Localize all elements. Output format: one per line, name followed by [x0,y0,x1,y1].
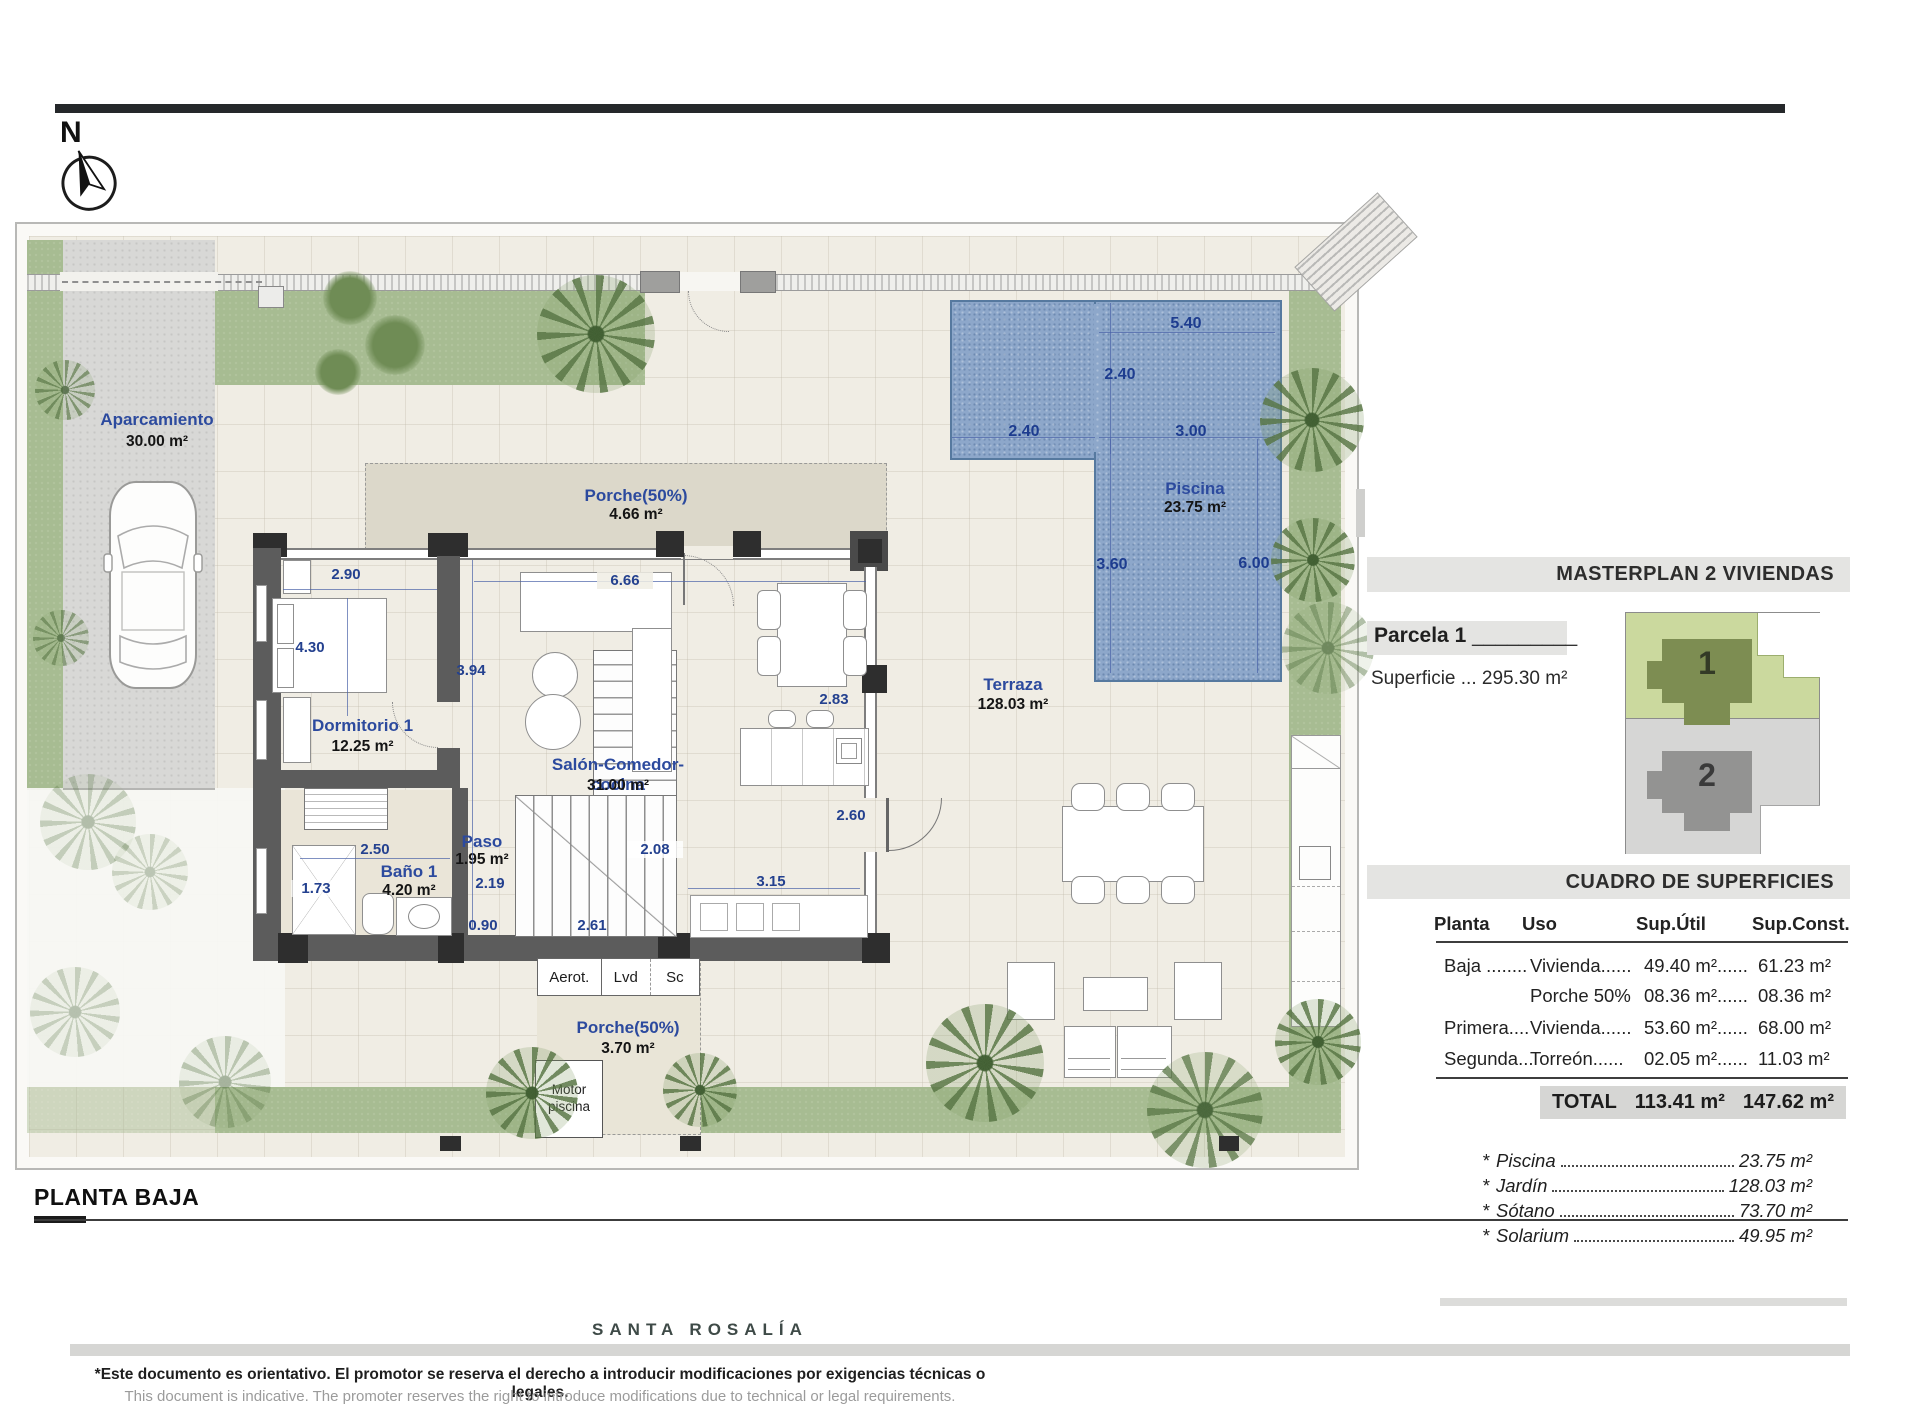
cell: 08.36 m²...... [1644,985,1758,1007]
dim-315: 3.15 [743,874,799,889]
total-bar: TOTAL 113.41 m² 147.62 m² [1540,1086,1846,1119]
appliance [772,903,800,931]
round-chair [525,694,581,750]
lounger-lines [1121,1058,1166,1070]
dim-173: 1.73 [291,880,341,897]
parcela-line: _________ [1472,624,1577,647]
extra-value: 128.03 m² [1729,1175,1812,1197]
unit2-number: 2 [1692,757,1722,794]
parcel1-notch-step [1783,655,1820,678]
storage-divider [1292,886,1340,887]
palm-tree-icon [1260,368,1364,472]
table-rule [1436,941,1848,943]
sink-basin [408,904,440,929]
north-compass-icon [45,137,131,223]
cuadro-title: CUADRO DE SUPERFICIES [1566,871,1834,894]
palm-tree-icon [33,610,89,666]
star: * [1482,1150,1496,1172]
wall-post [428,533,468,557]
porche-bottom-label: Porche(50%) [563,1018,693,1038]
disclaimer-en: This document is indicative. The promote… [80,1388,1000,1405]
window [256,848,267,914]
pool-dim-540: 5.40 [1146,316,1226,332]
cell: 53.60 m²...... [1644,1017,1758,1039]
bush-icon [323,271,377,325]
palm-tree-icon [1271,518,1355,602]
utility-aerot: Aerot. [538,959,602,995]
storage-door [1299,846,1331,880]
pool-dim-line [1099,332,1275,333]
boundary-marker [1356,489,1365,537]
palm-tree-icon [537,275,655,393]
parcel1-notch [1757,613,1820,656]
total-const: 147.62 m² [1743,1091,1834,1114]
col-uso: Uso [1522,913,1636,935]
cell: 02.05 m²...... [1644,1048,1758,1070]
outdoor-chair [1161,783,1195,811]
outdoor-table [1062,806,1204,882]
salon-area: 31.00 m² [528,778,708,794]
table-header-row: Planta Uso Sup.Útil Sup.Const. [1434,913,1848,935]
storage-divider [1292,931,1340,932]
window [256,700,267,760]
dim-090: 0.90 [455,918,511,933]
top-rule [55,104,1785,113]
utility-sc: Sc [651,959,699,995]
dining-chair [757,636,781,676]
palm-tree-icon [30,967,120,1057]
armchair [1174,962,1222,1020]
dim-394: 3.94 [443,663,499,678]
dim-250: 2.50 [347,842,403,857]
palm-tree-icon [663,1053,737,1127]
dim-219: 2.19 [462,876,518,891]
pool-dim-240h: 2.40 [994,424,1054,440]
wall-post [656,531,684,557]
cell: 68.00 m² [1758,1017,1848,1039]
toilet [362,893,394,935]
storage-divider [1292,981,1340,982]
col-suputil: Sup.Útil [1636,913,1752,935]
porche-top-label: Porche(50%) [571,486,701,506]
palm-tree-icon [112,834,188,910]
dining-chair [843,590,867,630]
masterplan-header: MASTERPLAN 2 VIVIENDAS [1367,557,1850,592]
utility-lvd: Lvd [602,959,651,995]
house2-shape [1684,813,1730,831]
col-planta: Planta [1434,913,1522,935]
dim-line [474,581,866,582]
table-row: Segunda... Torreón...... 02.05 m²...... … [1444,1048,1848,1070]
cell: Porche 50% [1530,985,1644,1007]
bush-icon [315,349,361,395]
house-top-window-wall [255,548,865,560]
cell: Torreón...... [1530,1048,1644,1070]
closet [304,788,388,830]
wall-post [278,933,308,963]
cell: 49.40 m²...... [1644,955,1758,977]
utility-strip: Aerot. Lvd Sc [537,958,700,996]
appliance [736,903,764,931]
bush-icon [365,315,425,375]
house1-shape [1684,703,1730,725]
bano-area: 4.20 m² [368,883,450,899]
dormitorio-area: 12.25 m² [295,739,430,755]
extra-name: Solarium [1496,1225,1569,1247]
paso-area: 1.95 m² [447,852,517,868]
outdoor-chair [1071,876,1105,904]
table-row: Primera.... Vivienda...... 53.60 m².....… [1444,1017,1848,1039]
cuadro-header: CUADRO DE SUPERFICIES [1367,865,1850,899]
sun-lounger [1064,1026,1116,1078]
wall-post [733,531,761,557]
coffee-table [1083,977,1148,1011]
pool-label: Piscina [1125,479,1265,499]
dim-666: 6.66 [597,572,653,589]
aparcamiento-label: Aparcamiento [77,410,237,430]
car-icon [102,476,204,694]
table-rule [1436,1077,1848,1079]
bano-label: Baño 1 [368,862,450,882]
extra-name: Jardín [1496,1175,1547,1197]
panel-bottom-rule [1440,1298,1847,1306]
island-sink-inner [841,743,857,759]
unit1-number: 1 [1692,645,1722,682]
lounger-lines [1068,1058,1110,1070]
gate-post [640,271,680,293]
footer-rule [70,1344,1850,1356]
fence-post [680,1136,701,1151]
outdoor-chair [1116,876,1150,904]
dim-290: 2.90 [318,567,374,582]
house2-shape [1647,771,1663,799]
dim-line [283,589,437,590]
col-supconst: Sup.Const. [1752,913,1848,935]
outdoor-chair [1161,876,1195,904]
palm-tree-icon [926,1004,1044,1122]
driveway-gate-dashed [62,281,262,283]
total-label: TOTAL [1552,1091,1617,1114]
storage-diagonal-box [1292,736,1340,769]
extra-value: 23.75 m² [1739,1150,1812,1172]
pool-dim-240v: 2.40 [1092,367,1148,383]
cell: Vivienda...... [1530,1017,1644,1039]
dining-table [777,583,847,687]
extra-piscina: * Piscina 23.75 m² [1482,1150,1812,1175]
masterplan-title: MASTERPLAN 2 VIVIENDAS [1556,563,1834,586]
dim-line [472,560,473,930]
dining-chair [757,590,781,630]
porche-top-area: 4.66 m² [571,507,701,523]
extras-list: * Piscina 23.75 m² * Jardín 128.03 m² * … [1482,1150,1812,1250]
dim-430: 4.30 [282,640,338,655]
palm-tree-icon [1147,1052,1263,1168]
terraza-area: 128.03 m² [958,697,1068,713]
star: * [1482,1225,1496,1247]
cell: Vivienda...... [1530,955,1644,977]
porche-bottom-area: 3.70 m² [563,1041,693,1057]
palm-tree-icon [179,1036,271,1128]
aparcamiento-area: 30.00 m² [77,434,237,450]
star: * [1482,1175,1496,1197]
masterplan-diagram: 1 2 [1625,612,1820,854]
dim-line [300,858,450,859]
stool [768,710,796,728]
pillow [277,604,294,644]
dormitorio-label: Dormitorio 1 [295,716,430,736]
palm-tree-icon [1275,999,1361,1085]
paso-label: Paso [452,832,512,852]
table-row: Baja ........ Vivienda...... 49.40 m²...… [1444,955,1848,977]
pool-area: 23.75 m² [1125,500,1265,516]
gate-motor-box [258,286,284,308]
stool [806,710,834,728]
parcel2-notch [1760,805,1820,854]
brand-logo: SANTA ROSALÍA [545,1320,855,1340]
dining-chair [843,636,867,676]
fence-post [440,1136,461,1151]
dim-line [347,598,348,716]
leader-dots [1552,1190,1723,1192]
dim-283: 2.83 [806,692,862,707]
corner-post-core [858,539,882,563]
round-chair [532,652,578,698]
plan-title: PLANTA BAJA [34,1184,199,1211]
cell: 61.23 m² [1758,955,1848,977]
sofa-chaise [632,628,672,772]
wall-post [438,933,464,963]
outdoor-storage-strip [1291,735,1341,1027]
bedroom-hall-wall [437,556,460,702]
extra-jardin: * Jardín 128.03 m² [1482,1175,1812,1200]
terraza-label: Terraza [958,675,1068,695]
appliance [700,903,728,931]
grass-left-strip [27,240,63,790]
outdoor-chair [1116,783,1150,811]
cell: Segunda... [1444,1048,1530,1070]
dim-208: 2.08 [627,841,683,858]
parcela-label: Parcela 1 [1374,624,1466,647]
cell: 11.03 m² [1758,1048,1848,1070]
pedestrian-gate-gap [676,272,742,291]
extra-name: Piscina [1496,1150,1556,1172]
leader-dots [1574,1240,1734,1242]
pool-dim-300: 3.00 [1161,424,1221,440]
palm-tree-icon [486,1047,578,1139]
extra-solarium: * Solarium 49.95 m² [1482,1225,1812,1250]
stairs-main-flight [515,795,677,937]
palm-tree-icon [1282,602,1374,694]
fence-post [1219,1136,1239,1151]
cell: Primera.... [1444,1017,1530,1039]
extra-value: 49.95 m² [1739,1225,1812,1247]
total-util: 113.41 m² [1635,1091,1725,1114]
bedroom-bottom-wall [281,770,460,788]
gate-post [740,271,776,293]
house1-shape [1647,661,1663,689]
plan-title-underline [34,1219,1848,1221]
extra-sotano: * Sótano 73.70 m² [1482,1200,1812,1225]
parcela-label-row: Parcela 1 _________ [1374,624,1634,654]
table-row: Porche 50% 08.36 m²...... 08.36 m² [1444,985,1848,1007]
pool-dim-360: 3.60 [1084,557,1140,573]
cell [1444,985,1530,1007]
north-label: N [60,116,82,150]
superficie-label: Superficie ... 295.30 m² [1371,668,1631,690]
dim-260: 2.60 [823,808,879,823]
outdoor-chair [1071,783,1105,811]
window [256,585,267,642]
leader-dots [1561,1165,1734,1167]
dim-261: 2.61 [564,918,620,933]
cell: Baja ........ [1444,955,1530,977]
leader-dots [1560,1215,1734,1217]
page: N 5.40 2.40 2.40 3.00 3.60 6.00 Piscin [0,0,1920,1406]
cell: 08.36 m² [1758,985,1848,1007]
